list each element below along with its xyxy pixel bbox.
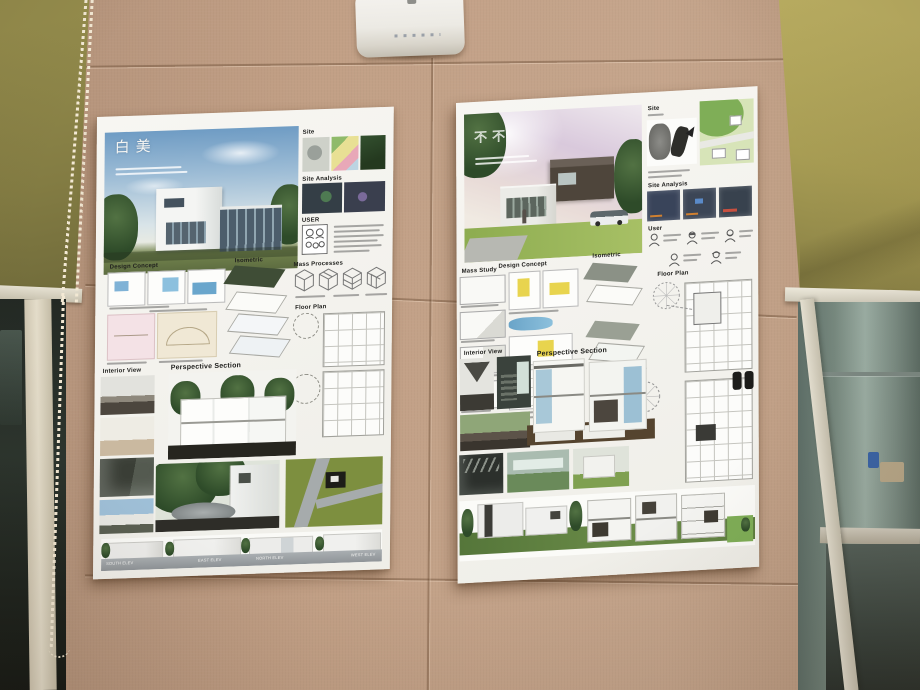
cloud xyxy=(200,139,280,168)
site-analysis-thumb xyxy=(302,182,342,213)
building-footprint xyxy=(326,472,346,489)
isometric-roof-plane xyxy=(223,266,285,288)
car-icon xyxy=(733,371,742,390)
isometric-roof-plane xyxy=(585,321,639,341)
tree-illustration xyxy=(461,509,473,538)
family-icon xyxy=(302,224,328,255)
persona-text-line xyxy=(725,257,737,259)
elevation-section-strip xyxy=(459,485,755,562)
person-icon xyxy=(686,231,698,246)
building-window xyxy=(164,198,184,208)
mass-study-diagram xyxy=(460,310,506,341)
right-poster-title: 不不 xyxy=(474,130,510,145)
section-floor-line xyxy=(636,516,676,520)
tree-illustration xyxy=(315,536,324,550)
exterior-garden-render xyxy=(155,460,280,532)
site-analysis-thumb xyxy=(683,188,716,220)
dark-building-volume xyxy=(550,156,614,202)
dark-room-patch xyxy=(642,501,656,514)
site-aerial-thumb xyxy=(360,135,385,170)
left-poster-title: 白美 xyxy=(115,139,157,155)
persona-text-line xyxy=(663,239,677,241)
concept-diagram xyxy=(542,268,578,308)
site-map-thumb xyxy=(302,137,329,172)
concept-diagram xyxy=(147,270,185,305)
person-icon xyxy=(724,229,736,244)
site-caption-line xyxy=(648,113,664,115)
isometric-floor-plate xyxy=(229,335,291,357)
interior-render-thumb xyxy=(459,453,503,496)
interior-render-thumb xyxy=(100,375,154,415)
persona-text-line xyxy=(739,235,751,237)
elevation-label: SOUTH ELEV xyxy=(106,561,133,566)
yellow-accent xyxy=(518,278,530,297)
mass-study-diagram xyxy=(460,275,506,306)
site-blob xyxy=(649,123,671,160)
plan-room-dark xyxy=(696,424,716,441)
mass-caption-line xyxy=(333,294,359,296)
perspective-section-render xyxy=(533,358,585,433)
building-window xyxy=(166,221,206,244)
user-text-line xyxy=(334,244,382,248)
dark-floor xyxy=(460,393,494,411)
mass-caption-line xyxy=(365,293,387,295)
white-building-volume xyxy=(229,464,278,518)
building-window xyxy=(558,172,576,185)
water-feature-diagram xyxy=(509,316,553,331)
site-zoning-thumb xyxy=(331,136,358,171)
elevation-label: NORTH ELEV xyxy=(256,556,284,561)
road xyxy=(288,456,332,527)
interior-render-thumb xyxy=(100,416,154,456)
site-caption-line xyxy=(648,174,682,177)
floor-plan-drawing-1f xyxy=(685,377,753,483)
white-building-volume xyxy=(156,187,223,251)
interior-render-thumb xyxy=(460,411,530,451)
green-grass-tile xyxy=(727,515,753,542)
elevation-label: WEST ELEV xyxy=(351,553,376,558)
building-window xyxy=(239,473,251,483)
tree-illustration xyxy=(741,517,750,532)
access-point-logo xyxy=(407,0,416,4)
right-hero-rendering: 不不 xyxy=(464,105,642,263)
site-plan-green-thumb xyxy=(700,98,754,165)
perspective-section-render xyxy=(589,359,647,432)
building-footprint xyxy=(736,149,750,161)
mass-cube-diagram xyxy=(317,268,339,293)
mass-cube-diagram xyxy=(293,268,315,293)
right-wall-crease-shadow xyxy=(800,175,920,295)
floor-plan-drawing-2f xyxy=(684,279,752,373)
user-text-line xyxy=(334,224,384,228)
right-window-frame-line xyxy=(816,372,920,376)
persona-text-line xyxy=(663,234,681,237)
ceiling-feature-dark xyxy=(464,362,490,383)
mass-cube-diagram xyxy=(341,267,363,292)
building-window xyxy=(550,511,560,520)
dark-interior-patch xyxy=(594,399,618,422)
access-point-indicator-leds xyxy=(394,33,440,38)
concept-caption-line xyxy=(509,310,559,314)
concept-diagram xyxy=(509,271,541,311)
interior-render-thumb xyxy=(100,457,154,497)
window-band xyxy=(513,458,563,471)
yellow-accent xyxy=(550,282,570,295)
section-label-interior-view: Interior View xyxy=(103,368,142,376)
glass-wing-volume xyxy=(220,205,282,252)
persona-text-line xyxy=(725,251,741,253)
section-floor-line xyxy=(588,517,630,521)
person-icon xyxy=(668,253,680,268)
section-label-user: User xyxy=(648,226,662,233)
concept-blue-accent xyxy=(114,281,128,291)
roof-bar xyxy=(534,363,584,369)
user-text-line xyxy=(334,239,378,243)
site-analysis-thumb xyxy=(647,190,680,222)
blue-object-reflection xyxy=(868,452,879,468)
section-label-floor-plan: Floor Plan xyxy=(295,304,326,312)
isometric-roof-plane xyxy=(583,263,637,283)
concept-sketch-beige xyxy=(157,311,217,359)
elevation-label: EAST ELEV xyxy=(198,558,222,563)
plan-room-dark xyxy=(693,291,721,325)
persona-text-line xyxy=(701,232,719,235)
elevation-strip: SOUTH ELEV EAST ELEV NORTH ELEV WEST ELE… xyxy=(101,529,382,571)
site-caption-line xyxy=(648,169,690,173)
section-building xyxy=(681,493,725,540)
exterior-render-thumb xyxy=(99,498,153,534)
sketch-caption-line xyxy=(159,359,203,362)
persona-text-line xyxy=(739,230,753,232)
site-analysis-thumb xyxy=(344,181,385,212)
roof-light xyxy=(331,476,339,482)
site-figure-ground-thumb xyxy=(647,118,697,167)
interior-render-thumb xyxy=(497,355,531,409)
bead-chain-curve xyxy=(48,636,70,658)
isometric-floor-plate xyxy=(586,284,643,305)
ceiling-light-streaks xyxy=(463,457,499,473)
concept-blue-accent xyxy=(192,282,216,295)
section-label-isometric: Isometric xyxy=(235,257,264,265)
site-analysis-thumb xyxy=(719,186,752,218)
dark-room-patch xyxy=(704,510,718,523)
concept-diagram xyxy=(187,269,225,304)
bright-window xyxy=(517,361,529,394)
person-silhouette xyxy=(522,209,526,223)
isometric-floor-plate xyxy=(227,313,289,335)
interior-render-thumb xyxy=(460,357,494,411)
concept-blue-accent xyxy=(162,277,178,292)
section-label-site: Site xyxy=(648,106,660,113)
section-label-isometric: Isometric xyxy=(592,252,620,260)
section-building xyxy=(635,493,677,541)
mass-caption-line xyxy=(295,295,325,298)
concept-diagram xyxy=(107,271,145,306)
blue-accent xyxy=(695,198,703,203)
tree-illustration xyxy=(241,538,250,553)
section-label-floor-plan: Floor Plan xyxy=(657,270,688,278)
title-subtext-line xyxy=(115,171,187,176)
user-text-line xyxy=(334,250,370,253)
green-site-plan-render xyxy=(285,456,383,527)
tree-illustration xyxy=(614,138,642,214)
user-text-line xyxy=(334,234,384,238)
stair-lines xyxy=(501,374,517,401)
building-footprint xyxy=(712,148,726,159)
floor-plan-drawing-2f xyxy=(323,311,385,367)
exterior-render-thumb xyxy=(573,446,629,489)
person-icon xyxy=(648,233,660,248)
dark-room-patch xyxy=(592,522,608,537)
beige-object-reflection xyxy=(880,462,904,482)
mass-cube-diagram xyxy=(365,266,387,291)
car-icon xyxy=(745,371,754,390)
user-text-line xyxy=(334,229,380,233)
section-building-cutaway xyxy=(180,396,286,448)
floor-plan-drawing-1f xyxy=(322,369,385,437)
perspective-section-render xyxy=(168,369,297,460)
elevation-building xyxy=(525,505,567,535)
section-building xyxy=(587,498,631,543)
section-label-design-concept: Design Concept xyxy=(499,261,547,270)
person-icon xyxy=(710,250,722,265)
car-rendering xyxy=(590,210,628,226)
building-footprint xyxy=(730,115,742,126)
persona-text-line xyxy=(683,254,701,257)
persona-text-line xyxy=(701,237,715,239)
left-architecture-poster: 白美 Site Site Analysis USER Mass Processe… xyxy=(93,107,394,580)
sketch-caption-line xyxy=(107,361,147,364)
compass-circle xyxy=(293,312,319,339)
persona-text-line xyxy=(683,259,697,261)
elevation-building xyxy=(477,502,523,539)
section-label-site-analysis: Site Analysis xyxy=(648,181,688,190)
left-window-reflection xyxy=(0,330,22,425)
isometric-floor-plate xyxy=(225,291,287,313)
interior-render-thumb xyxy=(507,449,569,493)
section-floor-line xyxy=(181,419,285,425)
title-subtext-line xyxy=(116,166,182,170)
section-label-site: Site xyxy=(303,129,315,136)
dark-ground xyxy=(155,516,279,532)
left-hero-rendering: 白美 xyxy=(104,126,299,275)
orange-accent xyxy=(686,213,698,216)
sketch-line xyxy=(114,334,148,336)
white-building-volume xyxy=(583,455,615,479)
photo-of-poster-wall: 白美 Site Site Analysis USER Mass Processe… xyxy=(0,0,920,690)
tree-illustration xyxy=(101,543,110,558)
red-accent xyxy=(723,208,737,212)
concept-sketch-pink xyxy=(107,313,155,361)
orange-accent xyxy=(650,215,662,218)
sketch-line xyxy=(166,326,210,346)
right-architecture-poster: 不不 Site Site Analysis User xyxy=(456,86,759,584)
wifi-access-point xyxy=(355,0,465,58)
tree-illustration xyxy=(569,501,582,532)
tree-illustration xyxy=(165,542,174,556)
